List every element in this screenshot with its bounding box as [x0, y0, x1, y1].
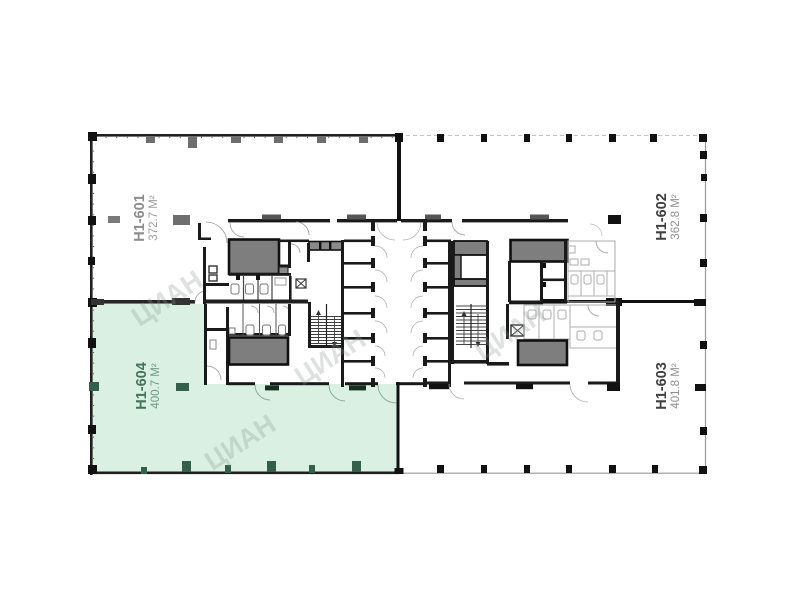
svg-text:H1-602: H1-602	[654, 193, 670, 241]
svg-text:401.8 М²: 401.8 М²	[670, 363, 682, 409]
svg-text:H1-601: H1-601	[132, 194, 148, 242]
svg-text:362.8 М²: 362.8 М²	[670, 194, 682, 240]
svg-text:H1-603: H1-603	[654, 362, 670, 410]
svg-text:400.7 М²: 400.7 М²	[150, 363, 162, 409]
svg-text:H1-604: H1-604	[134, 362, 150, 410]
svg-text:372.7 М²: 372.7 М²	[148, 195, 160, 241]
